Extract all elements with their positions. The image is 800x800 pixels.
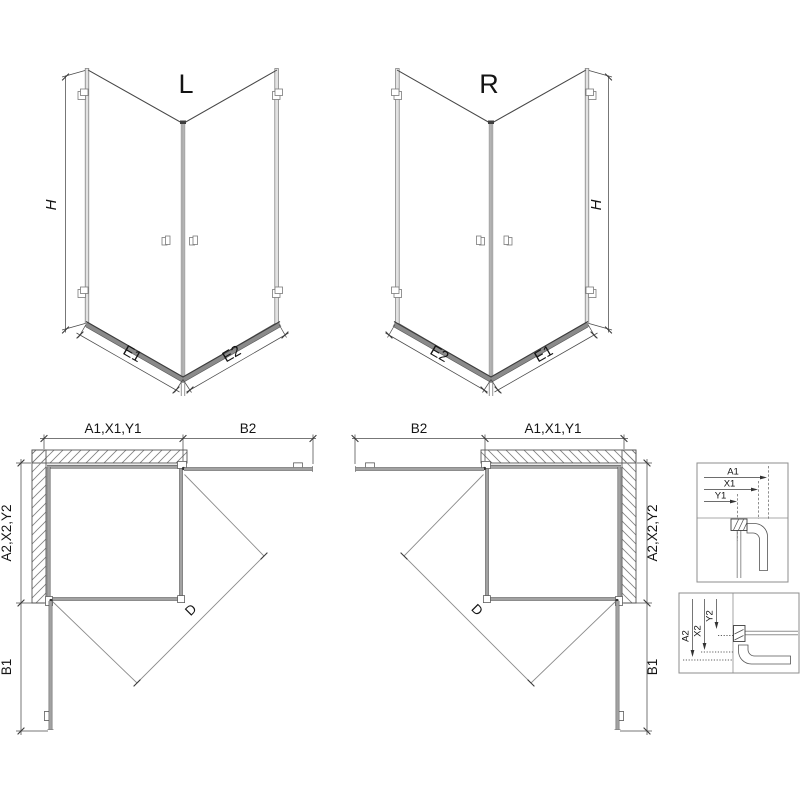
height-dim-label-l: H xyxy=(43,199,60,210)
l-plan-graphic xyxy=(16,435,316,736)
l-version-plan-view: A1,X1,Y1 B2 A2,X2,Y2 B1 D xyxy=(0,421,316,735)
detail-section-bottom: A2 X2 Y2 xyxy=(679,593,799,673)
drawing-canvas: L H E1 E2 R H E2 E1 A1,X1,Y1 B2 A2,X2,Y2… xyxy=(0,0,800,800)
a2-dim-label-r: A2,X2,Y2 xyxy=(645,504,660,561)
detail-y1-label: Y1 xyxy=(715,491,727,502)
height-dim-label-r: H xyxy=(588,199,605,210)
version-label-r: R xyxy=(479,69,499,99)
a2-dim-label-l: A2,X2,Y2 xyxy=(0,504,14,561)
r-version-plan-view: B2 A1,X1,Y1 A2,X2,Y2 B1 D xyxy=(352,421,660,735)
shower-enclosure-technical-drawing: L H E1 E2 R H E2 E1 A1,X1,Y1 B2 A2,X2,Y2… xyxy=(0,0,800,800)
a1-dim-label-r: A1,X1,Y1 xyxy=(524,421,581,436)
version-label-l: L xyxy=(178,69,193,99)
detail-x1-label: X1 xyxy=(724,479,736,490)
b2-dim-label-r: B2 xyxy=(411,421,428,436)
b1-dim-label-r: B1 xyxy=(645,659,660,676)
detail-a1-label: A1 xyxy=(727,467,739,478)
a1-dim-label-l: A1,X1,Y1 xyxy=(84,421,141,436)
detail-section-top: A1 X1 Y1 xyxy=(697,463,788,582)
l-enclosure-graphic xyxy=(62,69,289,397)
d-dim-label-l: D xyxy=(182,601,200,619)
b2-dim-label-l: B2 xyxy=(240,421,257,436)
detail-a2-label: A2 xyxy=(681,630,692,642)
l-version-3d-view: L H E1 E2 xyxy=(43,69,289,397)
detail-y2-label: Y2 xyxy=(705,610,716,622)
r-enclosure-graphic xyxy=(386,69,613,397)
r-version-3d-view: R H E2 E1 xyxy=(386,69,613,397)
d-dim-label-r: D xyxy=(468,601,486,619)
r-plan-graphic xyxy=(352,435,652,736)
b1-dim-label-l: B1 xyxy=(0,659,14,676)
detail-x2-label: X2 xyxy=(693,625,704,637)
